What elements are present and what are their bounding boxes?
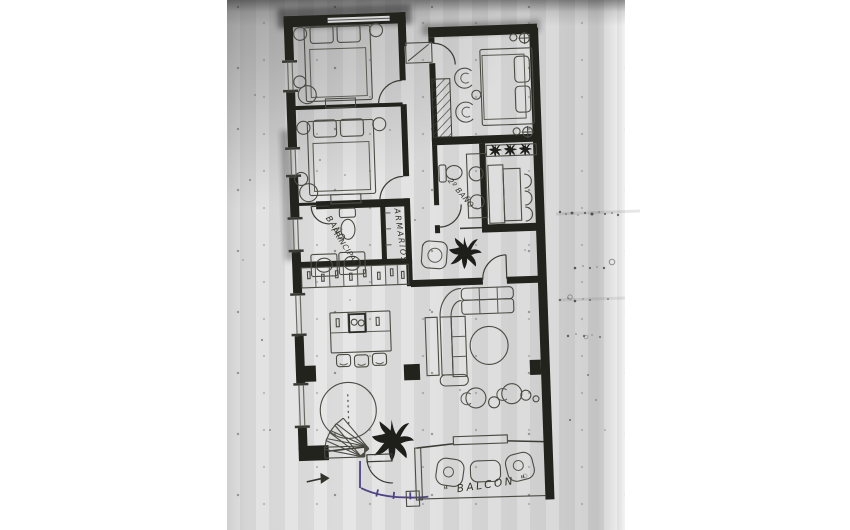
coffee-table xyxy=(469,326,508,365)
door-swing xyxy=(439,204,462,227)
dining-entry-zone xyxy=(303,380,428,503)
lounge-chair xyxy=(501,383,522,404)
bedside-lamp xyxy=(369,23,382,36)
bed xyxy=(307,119,376,195)
console-table xyxy=(425,317,439,375)
window xyxy=(290,293,306,336)
entry-arrow-icon xyxy=(306,473,329,485)
chair xyxy=(525,191,532,205)
bed xyxy=(304,25,373,101)
wardrobe-hatch xyxy=(432,79,452,138)
entry-door xyxy=(367,454,392,462)
pillow xyxy=(310,26,334,44)
blanket xyxy=(310,48,368,98)
bedroom-1 xyxy=(292,23,385,109)
sofa-seat xyxy=(462,299,514,315)
chair xyxy=(455,102,473,123)
round-dining-table xyxy=(319,381,377,439)
bedroom-3 xyxy=(430,32,535,141)
lounge-chair xyxy=(466,388,487,409)
bedroom-2 xyxy=(293,117,389,205)
entry-curb xyxy=(359,461,361,488)
sliding-door xyxy=(453,435,507,445)
ventilation-shaft xyxy=(405,42,432,63)
entry-steps xyxy=(323,417,369,458)
side-table xyxy=(472,90,481,99)
sofa-seat xyxy=(451,316,467,376)
pillow xyxy=(340,119,364,137)
chair xyxy=(525,207,532,221)
hallway xyxy=(420,236,482,271)
pillow xyxy=(514,56,530,83)
room-label-balcony: " BALCON " xyxy=(443,473,529,497)
toilet xyxy=(439,165,447,182)
bedside-lamp xyxy=(373,117,386,130)
balcony-wall xyxy=(415,448,423,500)
blanket xyxy=(313,142,371,192)
pillow xyxy=(515,86,531,113)
side-table xyxy=(533,396,539,402)
door-swing xyxy=(379,176,404,199)
window xyxy=(282,60,298,93)
window xyxy=(293,383,310,428)
door-swing xyxy=(433,42,456,65)
door-swing xyxy=(378,80,403,103)
kitchen xyxy=(301,264,411,369)
counter xyxy=(488,165,505,223)
table xyxy=(503,168,522,221)
plant-icon xyxy=(449,236,483,270)
chair xyxy=(524,174,531,188)
balcony: " BALCON " xyxy=(404,434,545,507)
scanned-floor-plan-page: BAÑO PRINCIPAL ARMARIOS xyxy=(0,0,850,530)
pillow xyxy=(313,120,337,138)
door-swing xyxy=(482,255,507,280)
pillow xyxy=(337,25,361,43)
chair xyxy=(454,68,472,89)
kitchen-nook xyxy=(486,142,539,223)
toilet xyxy=(339,208,355,218)
sofa-corner xyxy=(439,288,462,317)
plant-icon xyxy=(371,419,414,462)
chair xyxy=(299,183,318,202)
side-table xyxy=(488,397,499,408)
living-room xyxy=(424,286,539,410)
armchair xyxy=(421,241,448,270)
floor-plan-drawing: BAÑO PRINCIPAL ARMARIOS xyxy=(0,0,850,530)
apartment-plan: BAÑO PRINCIPAL ARMARIOS xyxy=(276,0,556,510)
balcony-step xyxy=(406,491,420,506)
photocopy-smudges xyxy=(276,0,548,261)
